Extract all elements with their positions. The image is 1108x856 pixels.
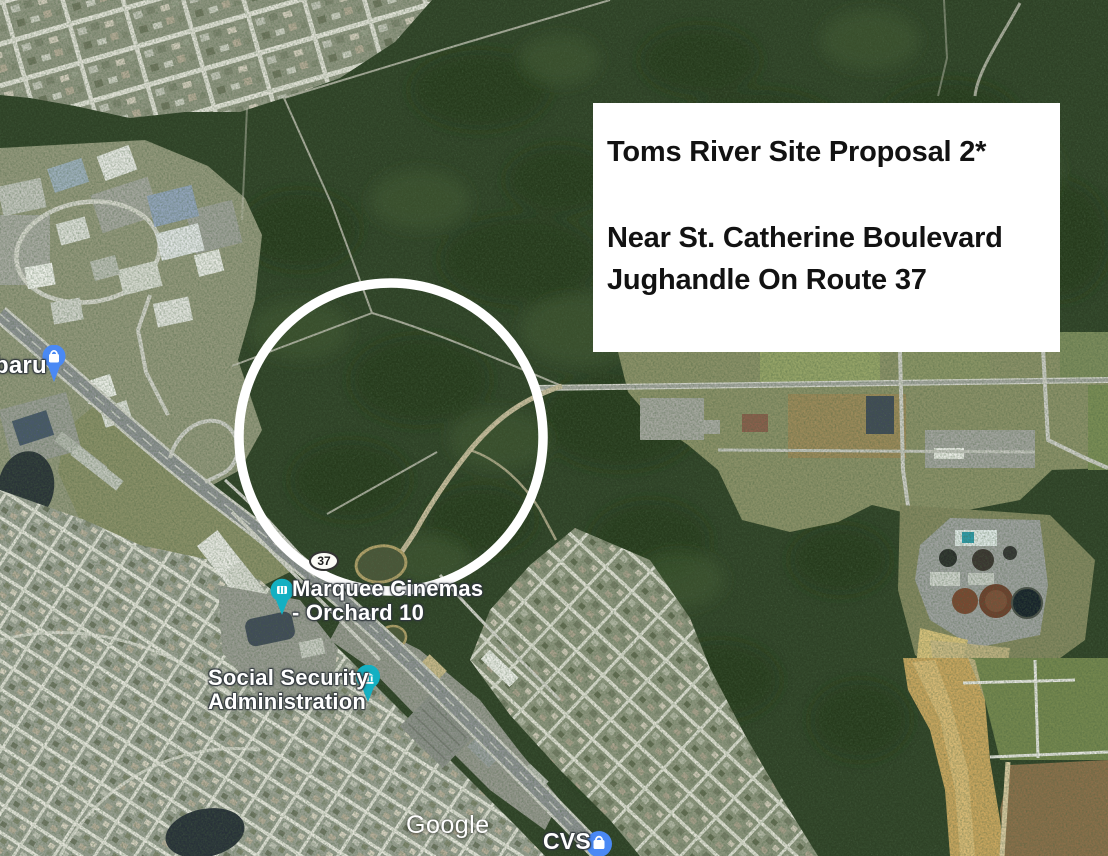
annotation-line2: Jughandle On Route 37 [607,259,1048,301]
subaru-label[interactable]: baru [0,354,47,378]
shopping-bag-icon [49,354,59,363]
social-security-label[interactable]: Social Security Administration [208,666,369,714]
cinema-icon [277,586,287,594]
shopping-bag-icon [594,840,605,849]
annotation-box: Toms River Site Proposal 2* Near St. Cat… [593,103,1060,352]
cvs-label[interactable]: CVS [543,829,591,853]
cinema-label[interactable]: Marquee Cinemas - Orchard 10 [292,577,483,625]
annotation-title: Toms River Site Proposal 2* [607,131,1048,173]
annotation-line1: Near St. Catherine Boulevard [607,217,1048,259]
ssa-label-line2: Administration [208,690,369,714]
route-37-shield: 37 [309,551,339,571]
satellite-map[interactable]: baru Marquee Cinemas - Orchard 10 Social… [0,0,1108,856]
cinema-label-line1: Marquee Cinemas [292,577,483,601]
ssa-label-line1: Social Security [208,666,369,690]
cinema-label-line2: - Orchard 10 [292,601,483,625]
google-watermark: Google [406,811,490,840]
